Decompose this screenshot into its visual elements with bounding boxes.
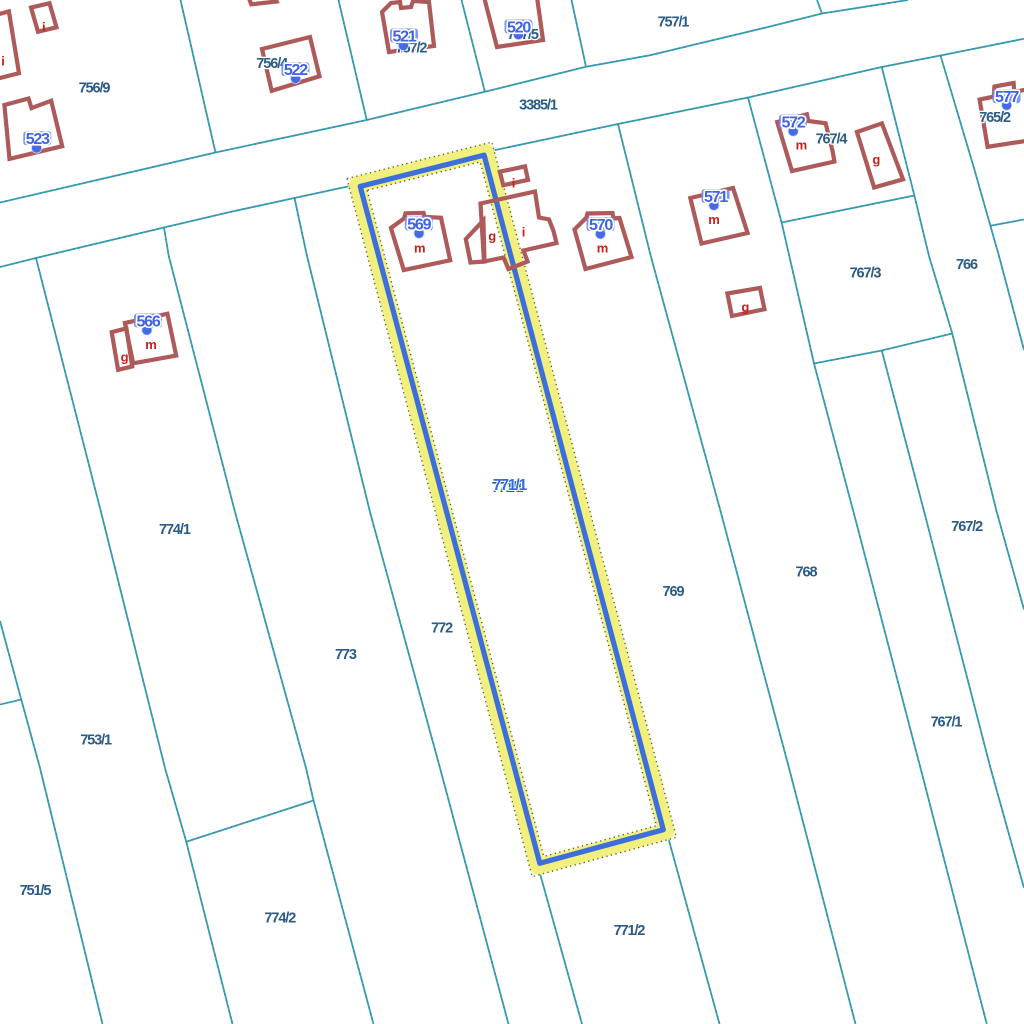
svg-text:756/9: 756/9	[79, 81, 111, 97]
svg-text:774/2: 774/2	[264, 910, 296, 926]
svg-text:i: i	[42, 20, 46, 35]
svg-text:g: g	[121, 350, 129, 365]
svg-text:m: m	[414, 241, 426, 256]
svg-text:520: 520	[507, 19, 531, 36]
svg-text:566: 566	[136, 313, 160, 330]
svg-text:g: g	[488, 229, 496, 244]
svg-text:572: 572	[781, 114, 805, 131]
svg-text:753/1: 753/1	[80, 733, 112, 749]
svg-text:i: i	[522, 225, 526, 240]
svg-text:767/1: 767/1	[931, 714, 963, 730]
svg-text:522: 522	[284, 62, 308, 79]
svg-text:523: 523	[26, 131, 50, 148]
svg-text:773: 773	[335, 647, 357, 663]
svg-text:751/5: 751/5	[20, 883, 52, 899]
svg-text:767/4: 767/4	[816, 131, 848, 147]
svg-text:757/1: 757/1	[658, 14, 690, 30]
svg-text:521: 521	[392, 28, 416, 45]
svg-text:577: 577	[995, 89, 1019, 106]
svg-text:i: i	[1, 54, 5, 69]
svg-text:m: m	[597, 241, 609, 256]
svg-text:3385/1: 3385/1	[519, 98, 558, 114]
svg-text:g: g	[872, 152, 880, 167]
svg-text:m: m	[708, 212, 720, 227]
svg-text:774/1: 774/1	[159, 522, 191, 538]
svg-text:771/1: 771/1	[493, 477, 528, 494]
svg-text:771/2: 771/2	[614, 923, 646, 939]
svg-text:571: 571	[704, 189, 728, 206]
svg-text:768: 768	[796, 565, 818, 581]
svg-text:766: 766	[956, 257, 978, 273]
svg-text:767/2: 767/2	[951, 519, 983, 535]
svg-text:i: i	[512, 176, 516, 191]
svg-text:765/2: 765/2	[979, 110, 1011, 126]
svg-text:767/3: 767/3	[850, 265, 882, 281]
svg-text:769: 769	[663, 584, 685, 600]
svg-text:m: m	[796, 138, 808, 153]
svg-text:570: 570	[589, 217, 613, 234]
svg-text:g: g	[741, 300, 749, 315]
svg-text:m: m	[145, 337, 157, 352]
svg-text:772: 772	[431, 621, 453, 637]
svg-text:569: 569	[407, 216, 431, 233]
